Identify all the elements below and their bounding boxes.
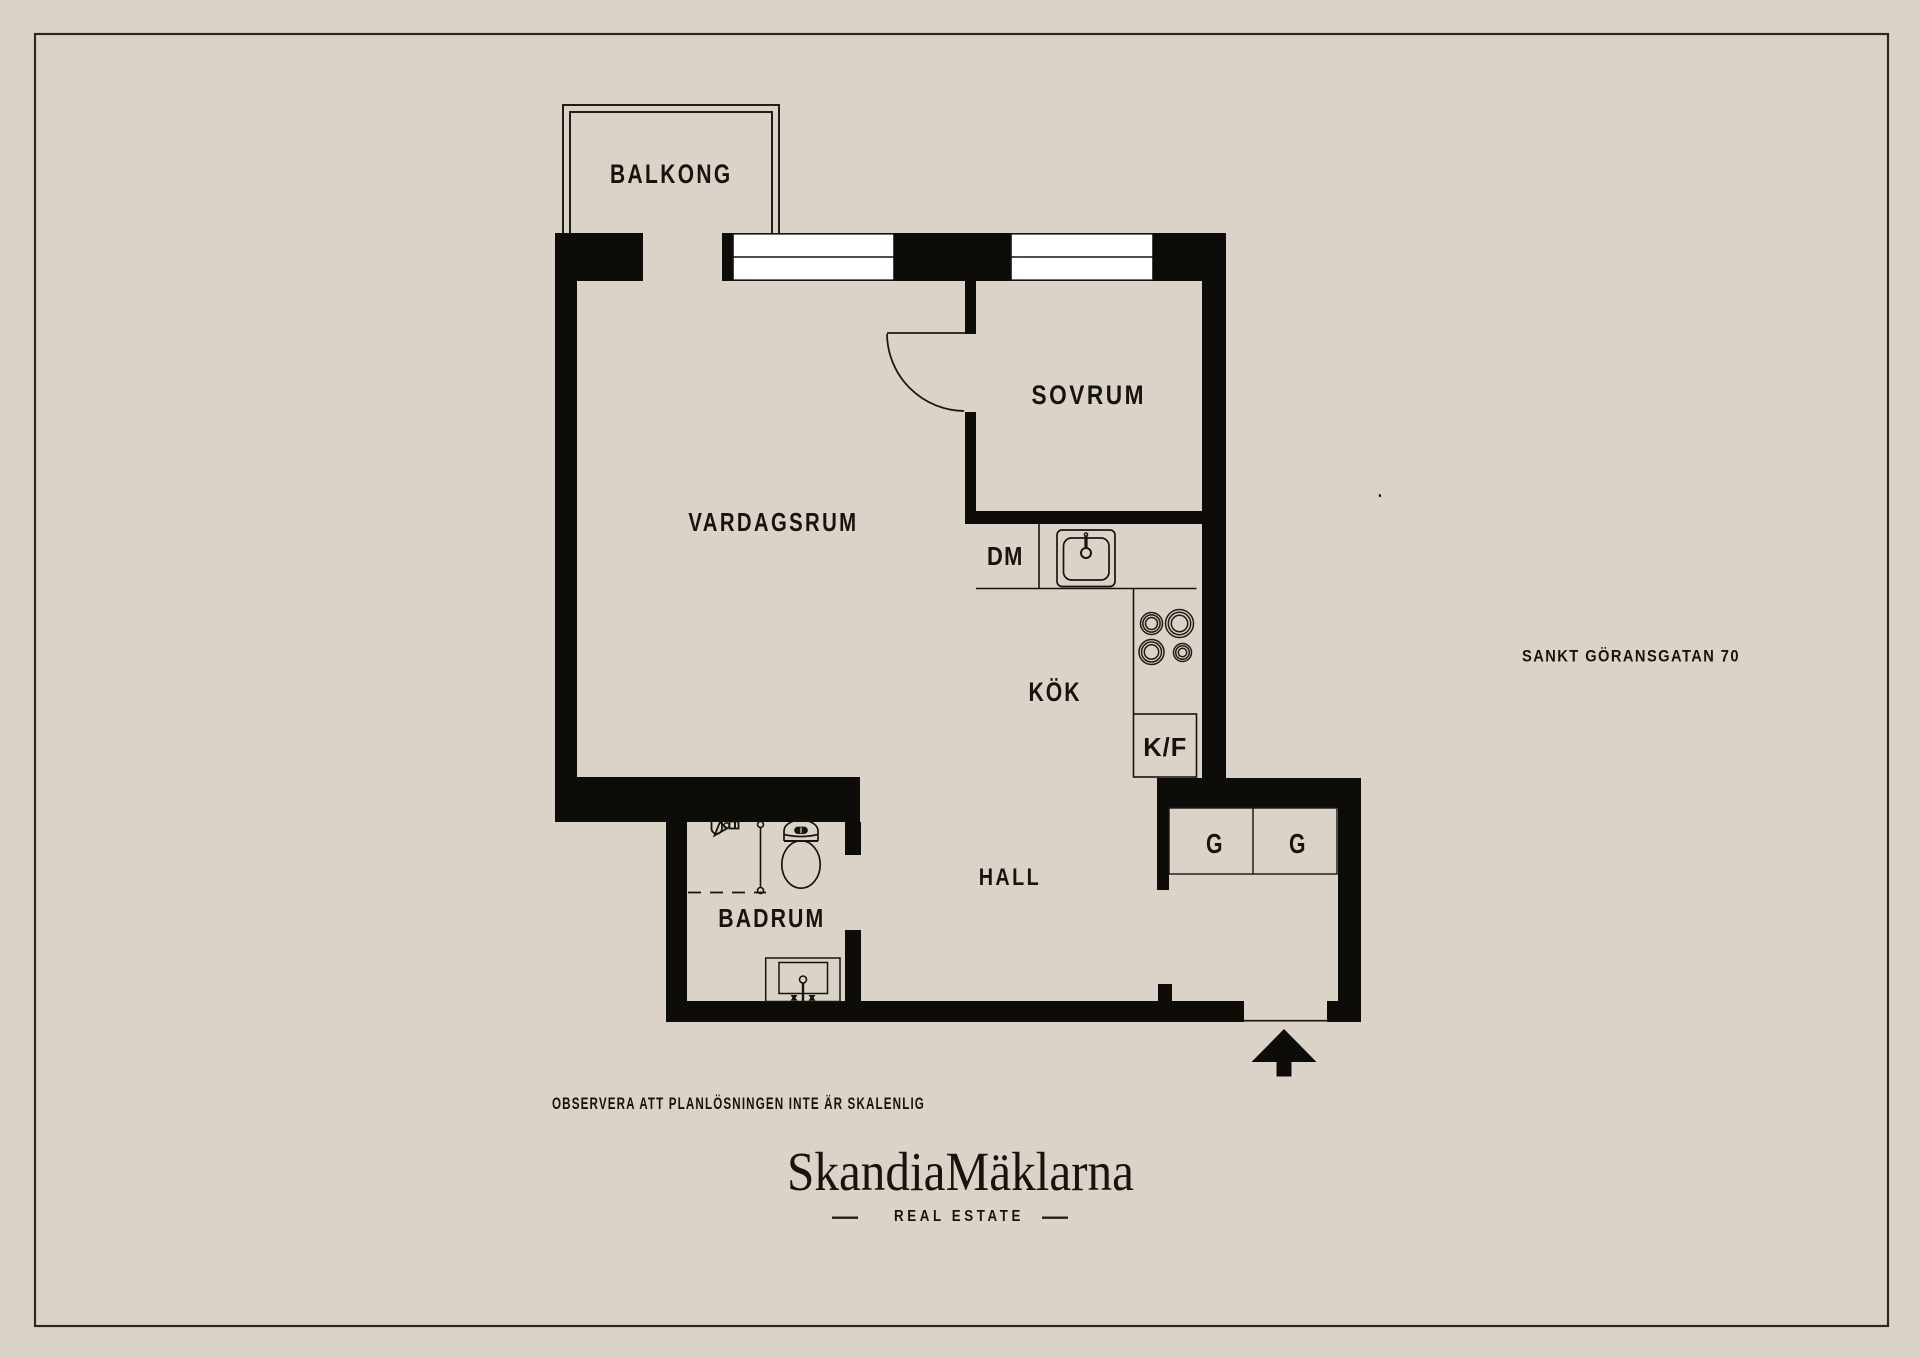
svg-text:KÖK: KÖK — [1029, 677, 1082, 707]
svg-text:REAL ESTATE: REAL ESTATE — [894, 1208, 1024, 1225]
svg-text:BALKONG: BALKONG — [610, 159, 733, 189]
svg-text:SANKT GÖRANSGATAN 70: SANKT GÖRANSGATAN 70 — [1522, 647, 1740, 666]
svg-text:SOVRUM: SOVRUM — [1032, 380, 1147, 410]
svg-text:G: G — [1206, 828, 1223, 859]
svg-text:HALL: HALL — [979, 864, 1041, 891]
svg-text:VARDAGSRUM: VARDAGSRUM — [688, 507, 858, 537]
svg-text:K/F: K/F — [1143, 734, 1187, 762]
svg-text:G: G — [1289, 828, 1306, 859]
svg-text:SkandiaMäklarna: SkandiaMäklarna — [787, 1141, 1134, 1202]
svg-text:BADRUM: BADRUM — [718, 905, 825, 933]
svg-text:DM: DM — [987, 543, 1024, 571]
svg-text:OBSERVERA ATT PLANLÖSNINGEN IN: OBSERVERA ATT PLANLÖSNINGEN INTE ÄR SKAL… — [552, 1094, 925, 1113]
